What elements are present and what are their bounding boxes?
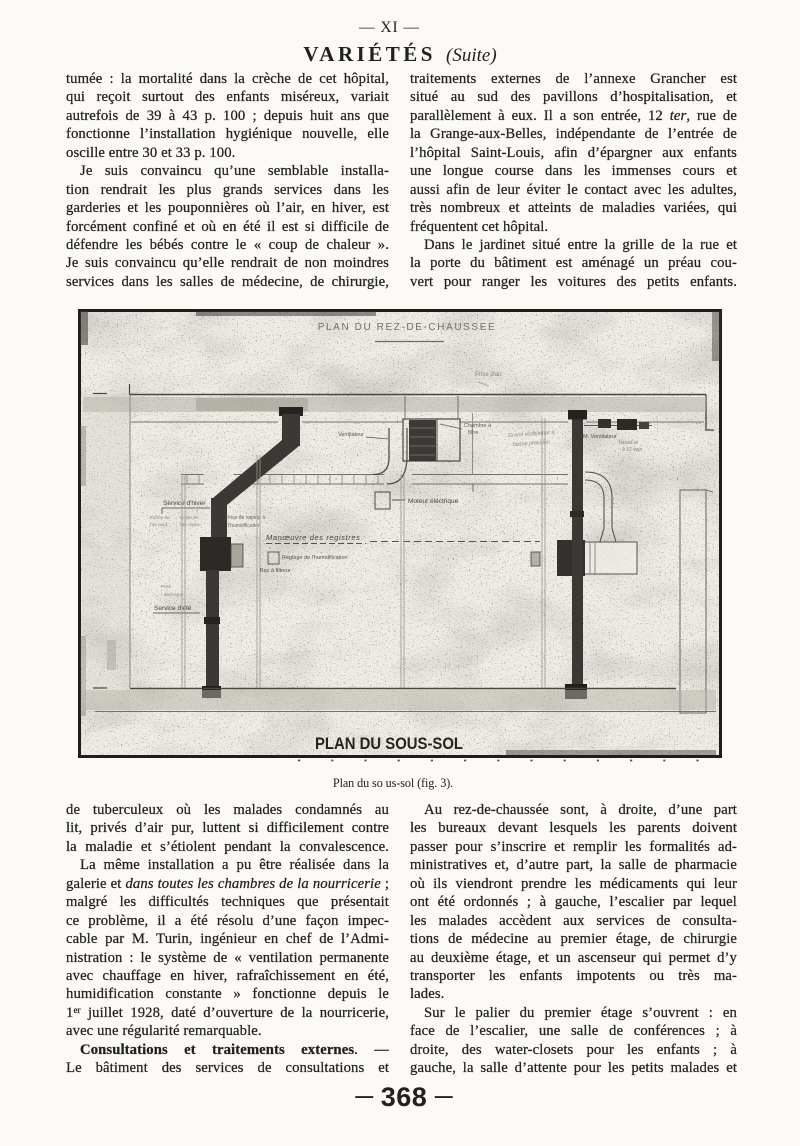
svg-text:Sortie de: Sortie de (180, 515, 199, 520)
svg-text:Bac à filtreur: Bac à filtreur (260, 568, 291, 574)
svg-text:Chambre à: Chambre à (464, 423, 492, 429)
svg-text:l'humidification: l'humidification (228, 523, 261, 529)
svg-text:basse et: basse et (619, 440, 639, 446)
svg-text:Prise de vapeur à: Prise de vapeur à (226, 515, 265, 521)
svg-text:Moteur électrique: Moteur électrique (408, 498, 459, 505)
svg-text:Entrée de: Entrée de (150, 515, 170, 520)
svg-text:M. Ventilateur: M. Ventilateur (583, 434, 617, 440)
svg-text:à 12 vein: à 12 vein (622, 447, 643, 453)
svg-text:Service d'été: Service d'été (154, 605, 192, 612)
svg-text:électrique: électrique (164, 592, 184, 597)
svg-text:PLAN DU SOUS-SOL: PLAN DU SOUS-SOL (315, 735, 463, 753)
svg-text:l'air neuf: l'air neuf (150, 522, 168, 527)
svg-text:Ventilateur: Ventilateur (338, 432, 364, 438)
svg-text:Prise: Prise (161, 584, 172, 589)
svg-text:Manœuvre des registres: Manœuvre des registres (266, 533, 360, 542)
svg-text:Réglage de l'humidification: Réglage de l'humidification (282, 555, 348, 561)
svg-text:Prise d'air: Prise d'air (475, 372, 502, 378)
svg-text:l'air repris: l'air repris (180, 522, 200, 527)
svg-text:filtre: filtre (468, 430, 478, 436)
svg-text:PLAN DU REZ-DE-CHAUSSEE: PLAN DU REZ-DE-CHAUSSEE (318, 322, 497, 333)
